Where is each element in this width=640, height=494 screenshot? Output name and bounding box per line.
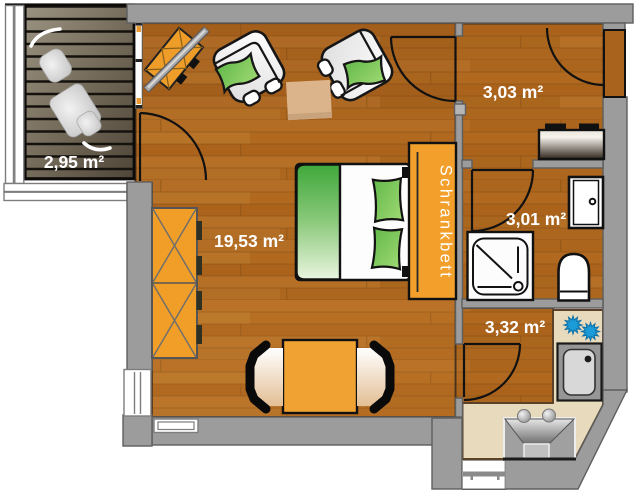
svg-text:3,32 m²: 3,32 m² xyxy=(485,317,545,337)
svg-text:3,03 m²: 3,03 m² xyxy=(483,82,543,102)
svg-text:Schrankbett: Schrankbett xyxy=(437,165,455,279)
svg-text:2,95 m²: 2,95 m² xyxy=(44,152,104,172)
svg-text:19,53 m²: 19,53 m² xyxy=(214,231,284,251)
svg-text:3,01 m²: 3,01 m² xyxy=(506,209,566,229)
